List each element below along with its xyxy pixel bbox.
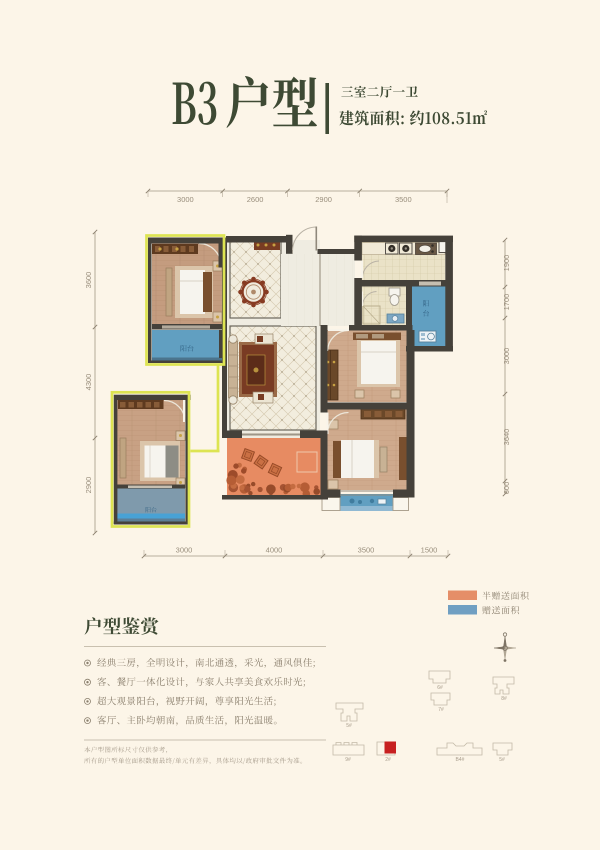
svg-text:4300: 4300: [84, 374, 93, 391]
svg-text:B4#: B4#: [456, 757, 465, 763]
svg-text:2900: 2900: [84, 477, 93, 494]
svg-text:5#: 5#: [499, 757, 505, 763]
svg-text:3600: 3600: [84, 272, 93, 289]
svg-text:3000: 3000: [502, 348, 511, 365]
svg-text:8#: 8#: [501, 696, 507, 702]
svg-text:3000: 3000: [177, 195, 194, 204]
svg-text:3640: 3640: [502, 429, 511, 446]
svg-text:2600: 2600: [247, 195, 264, 204]
svg-text:3000: 3000: [176, 546, 193, 555]
svg-text:7#: 7#: [438, 707, 444, 713]
svg-text:600: 600: [502, 482, 511, 495]
svg-text:3500: 3500: [358, 546, 375, 555]
svg-text:9#: 9#: [345, 757, 351, 763]
svg-text:1500: 1500: [421, 546, 438, 555]
svg-text:2#: 2#: [385, 757, 391, 763]
svg-text:5#: 5#: [346, 723, 352, 729]
svg-text:6#: 6#: [437, 685, 443, 691]
svg-text:4000: 4000: [266, 546, 283, 555]
svg-text:3500: 3500: [395, 195, 412, 204]
svg-text:1700: 1700: [502, 294, 511, 311]
svg-text:2900: 2900: [315, 195, 332, 204]
svg-text:1900: 1900: [502, 255, 511, 272]
